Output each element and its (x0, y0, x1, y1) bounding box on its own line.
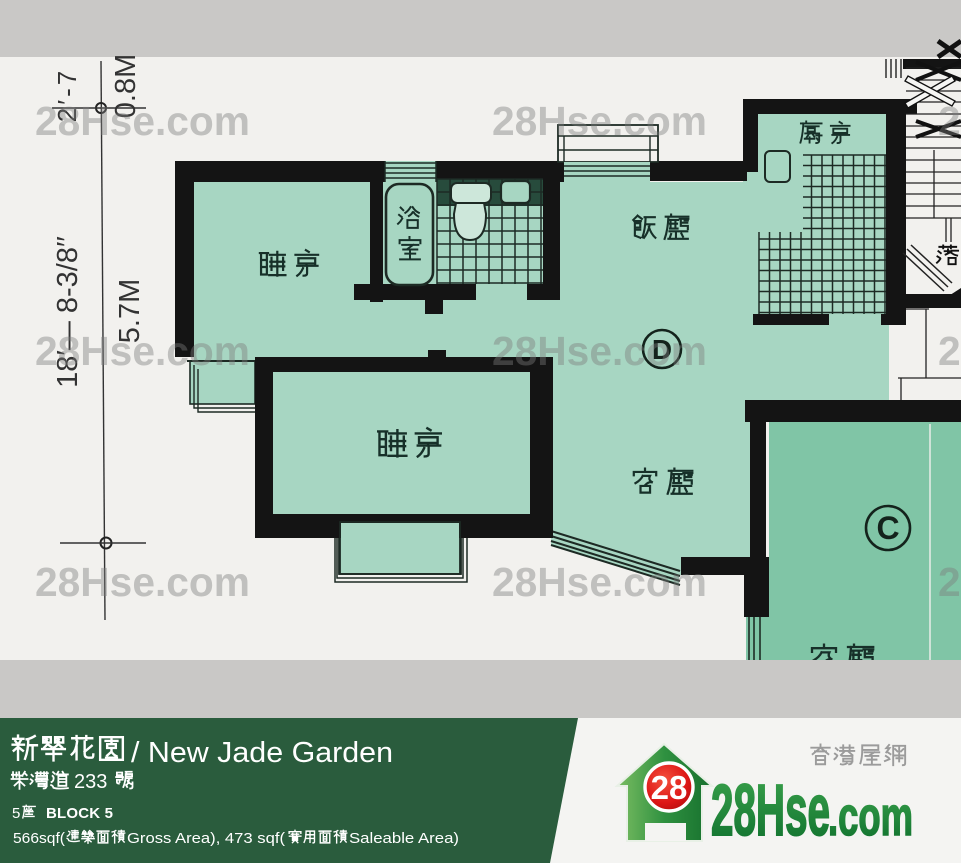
svg-text:28Hse.com: 28Hse.com (938, 559, 961, 605)
svg-text:/ New Jade Garden: / New Jade Garden (131, 737, 393, 769)
svg-text:Saleable Area): Saleable Area) (349, 830, 459, 847)
svg-text:BLOCK 5: BLOCK 5 (46, 805, 113, 822)
svg-text:28Hse.com: 28Hse.com (35, 98, 250, 144)
svg-text:28Hse.com: 28Hse.com (492, 559, 707, 605)
svg-text:28Hse.com: 28Hse.com (938, 98, 961, 144)
svg-text:233: 233 (74, 771, 107, 793)
svg-text:28Hse.com: 28Hse.com (35, 559, 250, 605)
svg-text:28Hse.com: 28Hse.com (35, 328, 250, 374)
svg-text:28Hse.com: 28Hse.com (492, 328, 707, 374)
svg-text:.com: .com (828, 785, 913, 847)
svg-text:5: 5 (12, 805, 20, 822)
svg-text:C: C (876, 510, 899, 546)
svg-text:28Hse.com: 28Hse.com (938, 328, 961, 374)
svg-text:Gross Area), 473 sqf(: Gross Area), 473 sqf( (127, 830, 285, 847)
svg-text:28Hse.com: 28Hse.com (492, 98, 707, 144)
svg-text:566sqf(: 566sqf( (13, 830, 65, 847)
svg-text:28: 28 (651, 769, 688, 806)
svg-text:28Hse: 28Hse (711, 771, 830, 851)
